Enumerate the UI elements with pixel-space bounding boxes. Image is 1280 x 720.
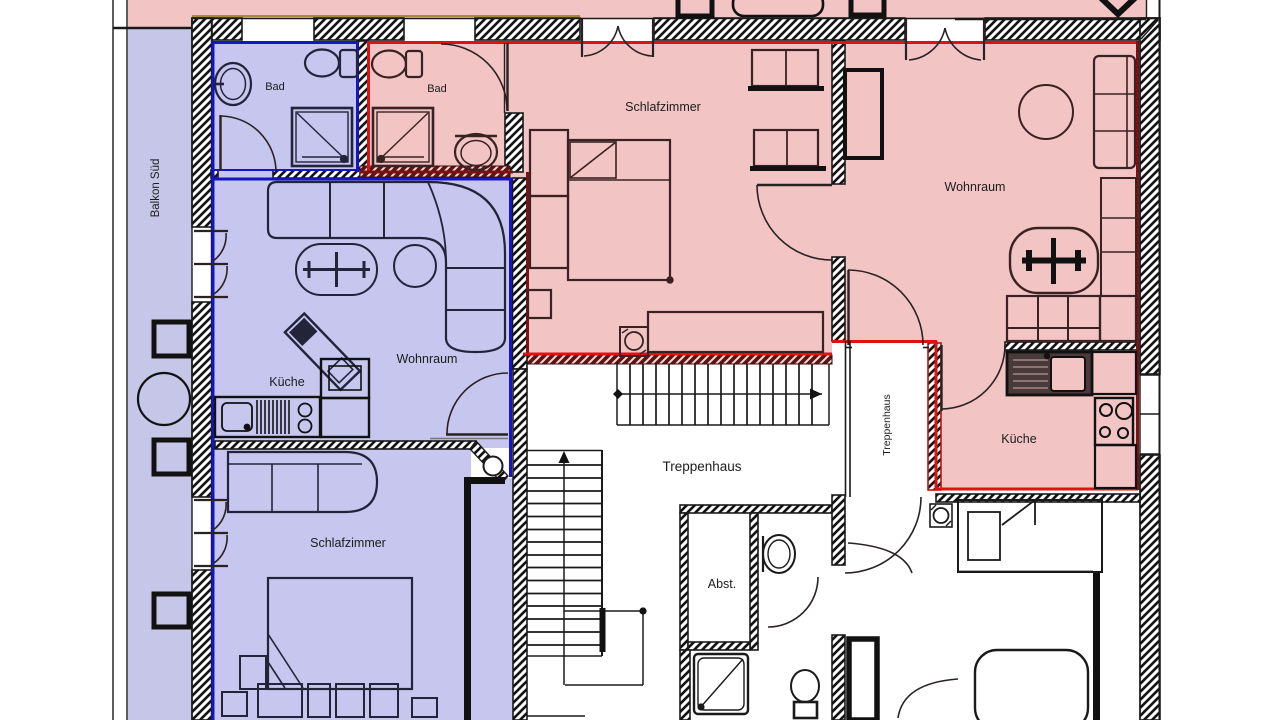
svg-text:Bad: Bad (427, 83, 447, 95)
svg-text:Abst.: Abst. (708, 577, 737, 591)
svg-text:Balkon Süd: Balkon Süd (150, 159, 162, 218)
svg-text:Wohnraum: Wohnraum (945, 180, 1006, 194)
svg-text:Treppenhaus: Treppenhaus (662, 459, 741, 474)
svg-text:Küche: Küche (269, 375, 304, 389)
svg-text:Treppenhaus: Treppenhaus (881, 394, 893, 456)
svg-text:Schlafzimmer: Schlafzimmer (310, 536, 386, 550)
svg-text:Bad: Bad (265, 81, 285, 93)
svg-text:Küche: Küche (1001, 432, 1036, 446)
svg-text:Wohnraum: Wohnraum (397, 352, 458, 366)
svg-text:Schlafzimmer: Schlafzimmer (625, 100, 701, 114)
